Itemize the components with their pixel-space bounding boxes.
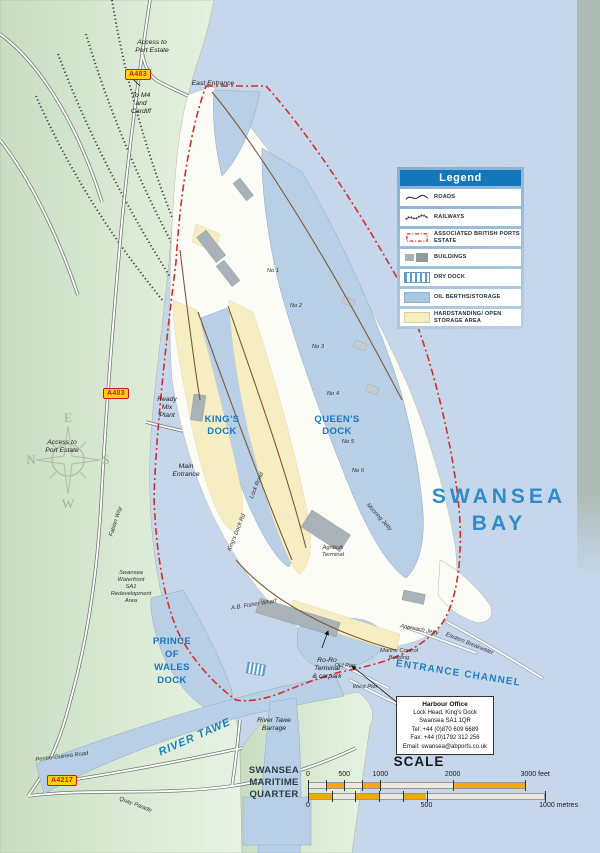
scale-feet-tick bbox=[525, 780, 526, 791]
scale-metres-tick-label: 0 bbox=[306, 802, 310, 809]
legend-label: RAILWAYS bbox=[434, 214, 464, 221]
agribulk-terminal-label: AgribulkTerminal bbox=[322, 545, 345, 558]
legend-label: DRY DOCK bbox=[434, 274, 465, 281]
scale-metres-tick bbox=[332, 791, 333, 802]
legend-label: BUILDINGS bbox=[434, 254, 467, 261]
access-to-port-estate-west-label: Access toPort Estate bbox=[45, 439, 79, 454]
buildings-swatch-icon bbox=[404, 252, 430, 263]
railway-swatch-icon bbox=[404, 212, 430, 223]
river-tawe-barrage-label: River TaweBarrage bbox=[257, 717, 291, 732]
west-pier-label: West Pier bbox=[352, 684, 378, 690]
scale-metres-segment bbox=[403, 794, 427, 799]
badge-a483-north: A483 bbox=[125, 69, 151, 80]
scale-metres-segment bbox=[355, 794, 379, 799]
scale-metres-tick bbox=[427, 791, 428, 802]
berth-no-3-label: No 3 bbox=[312, 344, 325, 350]
berth-no-1-label: No 1 bbox=[267, 268, 279, 274]
legend-panel: Legend ROADSRAILWAYSASSOCIATED BRITISH P… bbox=[397, 167, 524, 329]
scale-feet-tick-label: 2000 bbox=[445, 771, 461, 778]
scale-feet-tick bbox=[453, 780, 454, 791]
kings-dock-label: KING'SDOCK bbox=[205, 414, 240, 437]
scale-metres-tick bbox=[355, 791, 356, 802]
estate-swatch-icon bbox=[404, 232, 430, 243]
scale-feet-tick bbox=[326, 780, 327, 791]
legend-row-railway: RAILWAYS bbox=[400, 209, 521, 226]
berth-no-6-label: No 6 bbox=[352, 468, 365, 474]
scale-metres-tick bbox=[545, 791, 546, 802]
harbour-office-lines: Harbour OfficeLock Head, King's DockSwan… bbox=[399, 700, 491, 751]
scale-feet-tick-label: 500 bbox=[338, 771, 350, 778]
compass-s: S bbox=[102, 452, 109, 467]
scale-metres-segment bbox=[308, 794, 332, 799]
scale-bar: SCALE 0500100020003000 feet05001000 metr… bbox=[296, 754, 598, 822]
legend-row-buildings: BUILDINGS bbox=[400, 249, 521, 266]
scale-feet-tick bbox=[308, 780, 309, 791]
scale-feet-segment bbox=[362, 783, 380, 788]
scale-feet-tick-label: 3000 feet bbox=[521, 771, 550, 778]
legend-row-road: ROADS bbox=[400, 189, 521, 206]
harbour-office-box: Harbour OfficeLock Head, King's DockSwan… bbox=[396, 696, 494, 755]
harbour-office-line: Lock Head, King's Dock bbox=[399, 709, 491, 717]
scale-metres-tick bbox=[379, 791, 380, 802]
scale-feet-tick-label: 0 bbox=[306, 771, 310, 778]
scale-feet-tick-label: 1000 bbox=[373, 771, 389, 778]
road-swatch-icon bbox=[404, 192, 430, 203]
scale-metres-tick bbox=[403, 791, 404, 802]
scale-metres-tick-label: 500 bbox=[421, 802, 433, 809]
scale-metres-tick-label: 1000 metres bbox=[539, 802, 578, 809]
legend-row-hardstanding: HARDSTANDING/ OPEN STORAGE AREA bbox=[400, 309, 521, 326]
berth-no-4-label: No 4 bbox=[327, 391, 339, 397]
east-entrance-label: East Entrance bbox=[192, 80, 235, 87]
scale-feet-tick bbox=[344, 780, 345, 791]
badge-a4217: A4217 bbox=[47, 775, 77, 786]
shore-strip bbox=[577, 0, 600, 580]
scale-feet-tick bbox=[362, 780, 363, 791]
legend-label: ROADS bbox=[434, 194, 455, 201]
badge-a483-west: A483 bbox=[103, 388, 129, 399]
harbour-office-line: Tel: +44 (0)870 609 6689 bbox=[399, 726, 491, 734]
legend-items: ROADSRAILWAYSASSOCIATED BRITISH PORTS ES… bbox=[400, 189, 521, 326]
compass-e: E bbox=[64, 410, 72, 425]
legend-row-drydock: DRY DOCK bbox=[400, 269, 521, 286]
compass-n: N bbox=[26, 452, 36, 467]
scale-feet-segment bbox=[453, 783, 525, 788]
legend-label: OIL BERTHS/STORAGE bbox=[434, 294, 501, 301]
access-to-port-estate-north-label: Access toPort Estate bbox=[135, 39, 169, 54]
scale-metres-tick bbox=[308, 791, 309, 802]
legend-label: HARDSTANDING/ OPEN STORAGE AREA bbox=[434, 311, 520, 324]
berth-no-5-label: No 5 bbox=[342, 439, 355, 445]
compass-w: W bbox=[62, 496, 75, 511]
berth-no-2-label: No 2 bbox=[290, 303, 303, 309]
drydock-swatch-icon bbox=[404, 272, 430, 283]
harbour-office-line: Fax: +44 (0)1792 312 256 bbox=[399, 734, 491, 742]
legend-label: ASSOCIATED BRITISH PORTS ESTATE bbox=[434, 231, 520, 244]
swansea-port-map: E S W N Access toPort EstateTo M4andCard… bbox=[0, 0, 600, 853]
map-stage: E S W N Access toPort EstateTo M4andCard… bbox=[0, 0, 600, 853]
scale-feet-segment bbox=[326, 783, 344, 788]
legend-row-estate: ASSOCIATED BRITISH PORTS ESTATE bbox=[400, 229, 521, 246]
scale-title: SCALE bbox=[268, 754, 570, 769]
scale-feet-tick bbox=[380, 780, 381, 791]
swansea-maritime-quarter-label: SWANSEAMARITIMEQUARTER bbox=[249, 765, 299, 800]
harbour-office-line: Harbour Office bbox=[399, 700, 491, 709]
scale-canvas: 0500100020003000 feet05001000 metres bbox=[296, 769, 598, 819]
harbour-office-line: Swansea SA1 1QR bbox=[399, 717, 491, 725]
legend-row-oilberth: OIL BERTHS/STORAGE bbox=[400, 289, 521, 306]
legend-title: Legend bbox=[400, 170, 521, 186]
oilberth-swatch-icon bbox=[404, 292, 430, 303]
harbour-office-line: Email: swansea@abports.co.uk bbox=[399, 743, 491, 751]
hardstanding-swatch-icon bbox=[404, 312, 430, 323]
